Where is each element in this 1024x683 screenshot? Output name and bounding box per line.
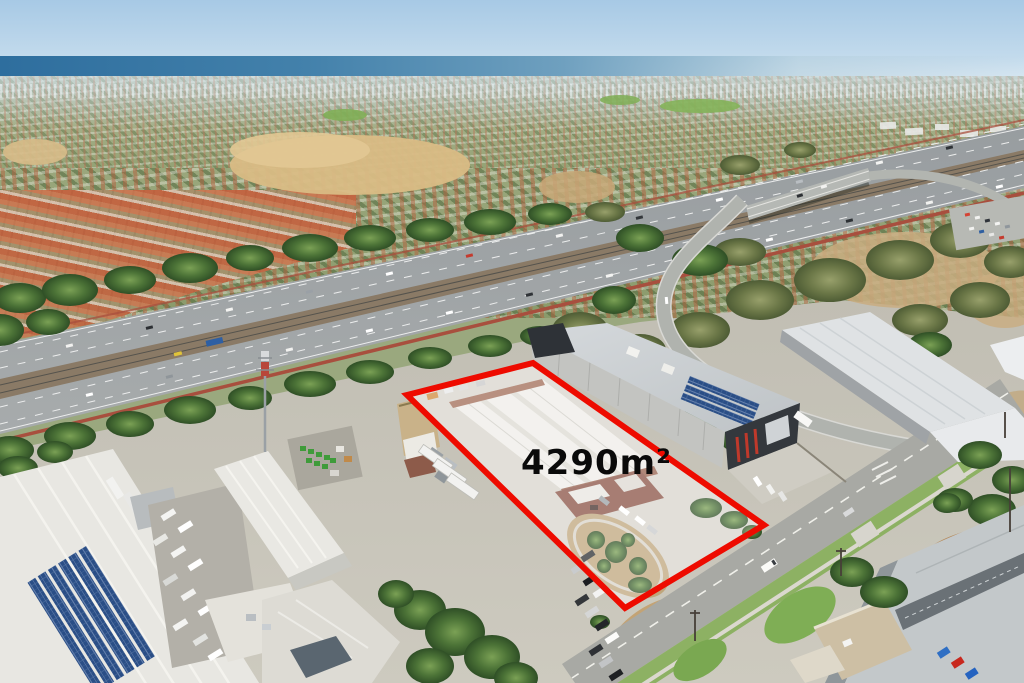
carpark (949, 196, 1024, 251)
golf-fairways (323, 95, 740, 121)
aerial-photo: 4290m² (0, 0, 1024, 683)
scene-graphics (0, 0, 1024, 683)
area-label: 4290m² (521, 446, 672, 480)
